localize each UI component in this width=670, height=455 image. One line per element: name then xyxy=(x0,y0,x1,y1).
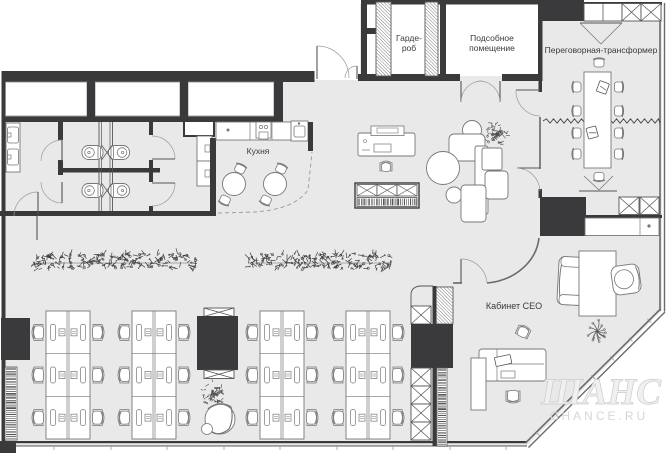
svg-text:помещение: помещение xyxy=(469,43,515,53)
svg-text:Переговорная-трансформер: Переговорная-трансформер xyxy=(545,45,658,55)
svg-text:Кухня: Кухня xyxy=(247,146,270,156)
svg-text:роб: роб xyxy=(402,43,416,53)
svg-text:Гарде-: Гарде- xyxy=(396,33,422,43)
svg-text:ШАНС: ШАНС xyxy=(540,372,662,413)
svg-text:Подсобное: Подсобное xyxy=(470,33,514,43)
svg-text:Кабинет CEO: Кабинет CEO xyxy=(486,301,542,311)
svg-text:CHANCE.RU: CHANCE.RU xyxy=(550,409,648,423)
